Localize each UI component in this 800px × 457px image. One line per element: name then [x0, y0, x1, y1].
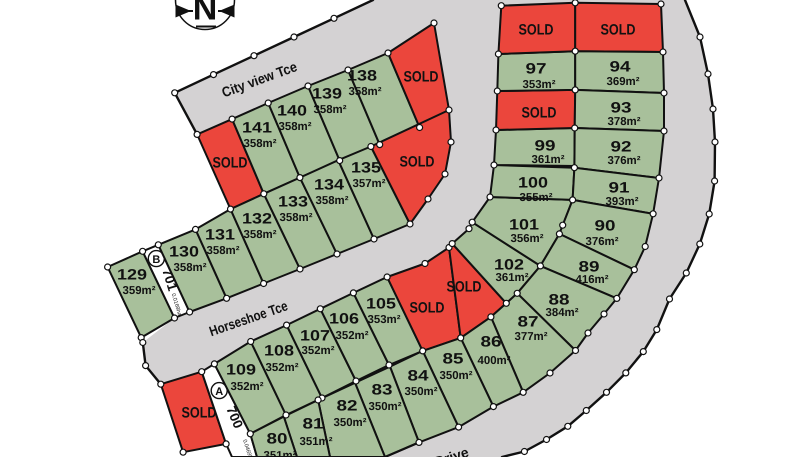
svg-text:358m²: 358m² — [316, 195, 349, 207]
svg-text:359m²: 359m² — [123, 285, 156, 297]
svg-text:358m²: 358m² — [279, 121, 312, 133]
svg-text:109: 109 — [226, 362, 256, 379]
svg-text:132: 132 — [242, 211, 272, 228]
svg-text:100: 100 — [518, 175, 548, 192]
svg-text:90: 90 — [595, 218, 616, 235]
svg-text:384m²: 384m² — [546, 307, 579, 319]
svg-text:SOLD: SOLD — [400, 154, 435, 171]
svg-text:377m²: 377m² — [515, 331, 548, 343]
svg-text:376m²: 376m² — [586, 236, 619, 248]
svg-text:93: 93 — [611, 100, 632, 117]
svg-text:105: 105 — [366, 296, 396, 313]
svg-text:97: 97 — [526, 61, 547, 78]
svg-text:352m²: 352m² — [336, 330, 369, 342]
svg-text:129: 129 — [117, 267, 147, 284]
svg-text:99: 99 — [535, 138, 556, 155]
svg-text:358m²: 358m² — [349, 86, 382, 98]
svg-text:355m²: 355m² — [520, 192, 553, 204]
svg-text:352m²: 352m² — [266, 362, 299, 374]
svg-text:87: 87 — [518, 314, 539, 331]
svg-text:101: 101 — [509, 217, 539, 234]
svg-text:131: 131 — [205, 227, 235, 244]
svg-text:351m²: 351m² — [264, 450, 297, 457]
svg-text:83: 83 — [372, 382, 393, 399]
svg-text:SOLD: SOLD — [519, 22, 554, 39]
svg-text:357m²: 357m² — [353, 178, 386, 190]
svg-text:94: 94 — [610, 59, 632, 76]
svg-text:B: B — [152, 254, 160, 266]
svg-text:91: 91 — [609, 180, 630, 197]
svg-text:N: N — [193, 0, 218, 28]
svg-text:85: 85 — [443, 351, 464, 368]
svg-text:SOLD: SOLD — [182, 405, 217, 422]
svg-text:358m²: 358m² — [244, 229, 277, 241]
svg-text:80: 80 — [267, 431, 288, 448]
svg-text:353m²: 353m² — [523, 79, 556, 91]
svg-text:350m²: 350m² — [334, 417, 367, 429]
svg-text:353m²: 353m² — [368, 314, 401, 326]
svg-text:356m²: 356m² — [511, 233, 544, 245]
svg-text:361m²: 361m² — [496, 272, 529, 284]
svg-text:102: 102 — [494, 257, 524, 274]
svg-text:SOLD: SOLD — [213, 155, 248, 172]
svg-text:135: 135 — [351, 160, 381, 177]
svg-text:92: 92 — [611, 139, 632, 156]
svg-text:141: 141 — [242, 120, 272, 137]
svg-text:369m²: 369m² — [607, 76, 640, 88]
svg-text:358m²: 358m² — [244, 138, 277, 150]
svg-text:358m²: 358m² — [280, 212, 313, 224]
svg-text:130: 130 — [169, 244, 199, 261]
svg-text:SOLD: SOLD — [601, 22, 636, 39]
svg-text:134: 134 — [314, 177, 345, 194]
svg-text:A: A — [215, 386, 223, 398]
svg-text:361m²: 361m² — [532, 154, 565, 166]
svg-text:86: 86 — [481, 334, 502, 351]
svg-text:358m²: 358m² — [207, 245, 240, 257]
svg-text:133: 133 — [278, 194, 308, 211]
svg-text:82: 82 — [337, 398, 358, 415]
svg-text:SOLD: SOLD — [410, 300, 445, 317]
svg-text:376m²: 376m² — [608, 155, 641, 167]
svg-text:81: 81 — [303, 416, 324, 433]
svg-text:SOLD: SOLD — [522, 105, 557, 122]
svg-text:400m²: 400m² — [478, 355, 511, 367]
svg-text:107: 107 — [300, 328, 330, 345]
svg-text:358m²: 358m² — [174, 262, 207, 274]
svg-text:378m²: 378m² — [608, 116, 641, 128]
svg-text:108: 108 — [264, 343, 294, 360]
svg-text:350m²: 350m² — [405, 386, 438, 398]
svg-text:139: 139 — [312, 86, 342, 103]
svg-text:351m²: 351m² — [300, 436, 333, 448]
svg-text:SOLD: SOLD — [404, 69, 439, 86]
svg-text:350m²: 350m² — [440, 370, 473, 382]
svg-text:352m²: 352m² — [302, 345, 335, 357]
svg-text:358m²: 358m² — [314, 104, 347, 116]
svg-text:350m²: 350m² — [369, 401, 402, 413]
svg-text:SOLD: SOLD — [447, 279, 482, 296]
svg-text:89: 89 — [579, 259, 600, 276]
svg-text:106: 106 — [329, 311, 359, 328]
svg-text:352m²: 352m² — [231, 381, 264, 393]
svg-text:140: 140 — [277, 103, 307, 120]
svg-text:84: 84 — [408, 368, 430, 385]
svg-text:88: 88 — [549, 292, 570, 309]
